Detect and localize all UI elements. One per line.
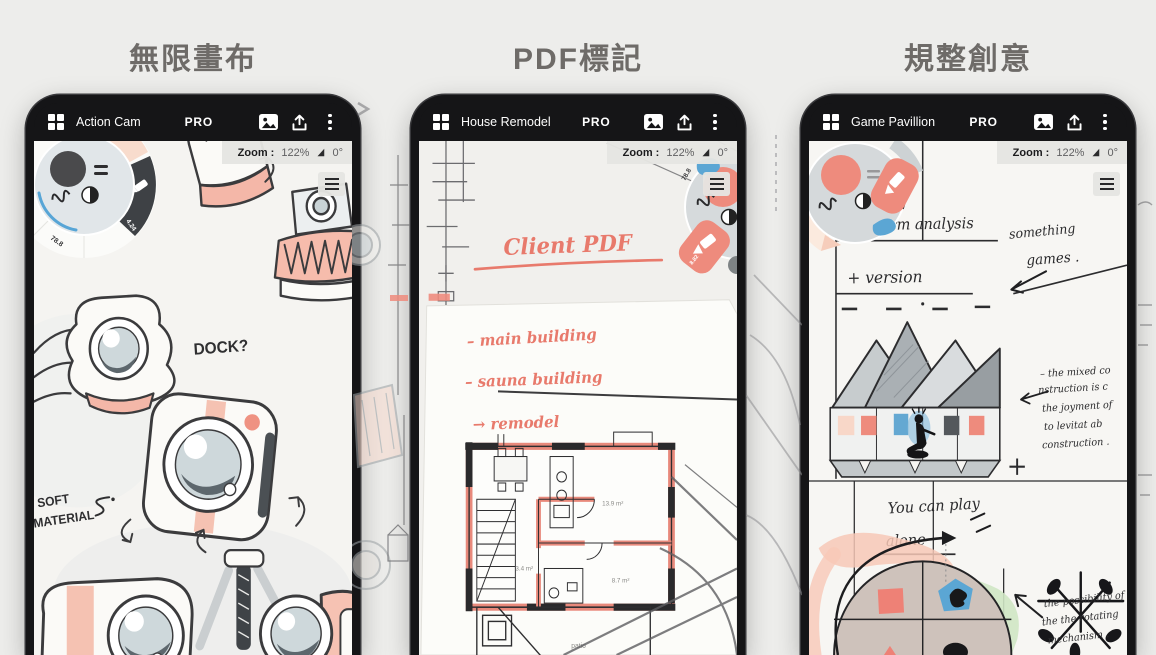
- layers-panel-button[interactable]: [703, 172, 730, 196]
- share-export-icon[interactable]: [1063, 112, 1085, 132]
- plan-area-living: 13.9 m²: [602, 500, 624, 507]
- layers-panel-button[interactable]: [1093, 172, 1120, 196]
- canvas-bleed-left-gap: [352, 95, 410, 643]
- import-image-icon[interactable]: [1032, 112, 1054, 132]
- note-remodel: → remodel: [472, 412, 559, 434]
- note-client-pdf: Client PDF: [503, 231, 634, 261]
- drawing-canvas[interactable]: The form analysis + version something ga…: [809, 141, 1127, 655]
- plan-area-bed: 8.7 m²: [612, 578, 631, 585]
- app-toolbar: House Remodel PRO: [419, 103, 737, 141]
- app-toolbar: Game Pavillion PRO: [809, 103, 1127, 141]
- phone-screen: Action Cam PRO: [34, 103, 352, 655]
- app-toolbar: Action Cam PRO: [34, 103, 352, 141]
- grid-menu-icon[interactable]: [820, 112, 842, 132]
- share-export-icon[interactable]: [673, 112, 695, 132]
- angle-triangle-icon: [1091, 148, 1100, 157]
- zoom-value: 122%: [281, 147, 309, 159]
- wheel-size-value: 78.8: [681, 167, 694, 182]
- grid-menu-icon[interactable]: [430, 112, 452, 132]
- phone-mockup-action-cam: Action Cam PRO: [26, 95, 360, 655]
- angle-value: 0°: [717, 147, 728, 159]
- overflow-menu-icon[interactable]: [1094, 112, 1116, 132]
- pro-badge: PRO: [582, 115, 610, 129]
- angle-value: 0°: [332, 147, 343, 159]
- section-heading-organize-ideas: 規整創意: [801, 34, 1135, 78]
- phone-screen: House Remodel PRO Client PDF: [419, 103, 737, 655]
- angle-triangle-icon: [316, 148, 325, 157]
- plan-area-small: 3.4 m²: [515, 565, 534, 572]
- tool-wheel[interactable]: [809, 141, 947, 279]
- project-title[interactable]: House Remodel: [461, 115, 551, 129]
- drawing-canvas[interactable]: DOCK?: [34, 141, 352, 655]
- active-color-swatch[interactable]: [821, 155, 861, 195]
- zoom-status-bar[interactable]: Zoom : 122% 0°: [607, 141, 737, 164]
- overflow-menu-icon[interactable]: [319, 112, 341, 132]
- project-title[interactable]: Game Pavillion: [851, 115, 935, 129]
- zoom-status-bar[interactable]: Zoom : 122% 0°: [997, 141, 1127, 164]
- section-heading-pdf-markup: PDF標記: [411, 34, 745, 78]
- drawing-canvas[interactable]: Client PDF – main building – sauna build…: [419, 141, 737, 655]
- share-export-icon[interactable]: [288, 112, 310, 132]
- canvas-bleed-mid-gap: [746, 95, 802, 643]
- zoom-label: Zoom :: [238, 147, 275, 159]
- tool-wheel[interactable]: 78.8 8.82: [645, 145, 737, 295]
- project-title[interactable]: Action Cam: [76, 115, 141, 129]
- section-heading-infinite-canvas: 無限畫布: [26, 34, 360, 78]
- pro-badge: PRO: [185, 115, 213, 129]
- active-color-swatch[interactable]: [50, 151, 86, 187]
- overflow-menu-icon[interactable]: [704, 112, 726, 132]
- zoom-label: Zoom :: [623, 147, 660, 159]
- import-image-icon[interactable]: [642, 112, 664, 132]
- zoom-status-bar[interactable]: Zoom : 122% 0°: [222, 141, 352, 164]
- canvas-bleed-right-edge: [1136, 95, 1156, 643]
- layers-panel-button[interactable]: [318, 172, 345, 196]
- zoom-value: 122%: [1056, 147, 1084, 159]
- angle-value: 0°: [1107, 147, 1118, 159]
- import-image-icon[interactable]: [257, 112, 279, 132]
- phone-mockup-house-remodel: House Remodel PRO Client PDF: [411, 95, 745, 655]
- zoom-label: Zoom :: [1013, 147, 1050, 159]
- pro-badge: PRO: [969, 115, 997, 129]
- zoom-value: 122%: [666, 147, 694, 159]
- phone-screen: Game Pavillion PRO The form analysis + v…: [809, 103, 1127, 655]
- tool-wheel[interactable]: 4.24 78.8: [34, 141, 176, 285]
- angle-triangle-icon: [701, 148, 710, 157]
- phone-mockup-game-pavillion: Game Pavillion PRO The form analysis + v…: [801, 95, 1135, 655]
- grid-menu-icon[interactable]: [45, 112, 67, 132]
